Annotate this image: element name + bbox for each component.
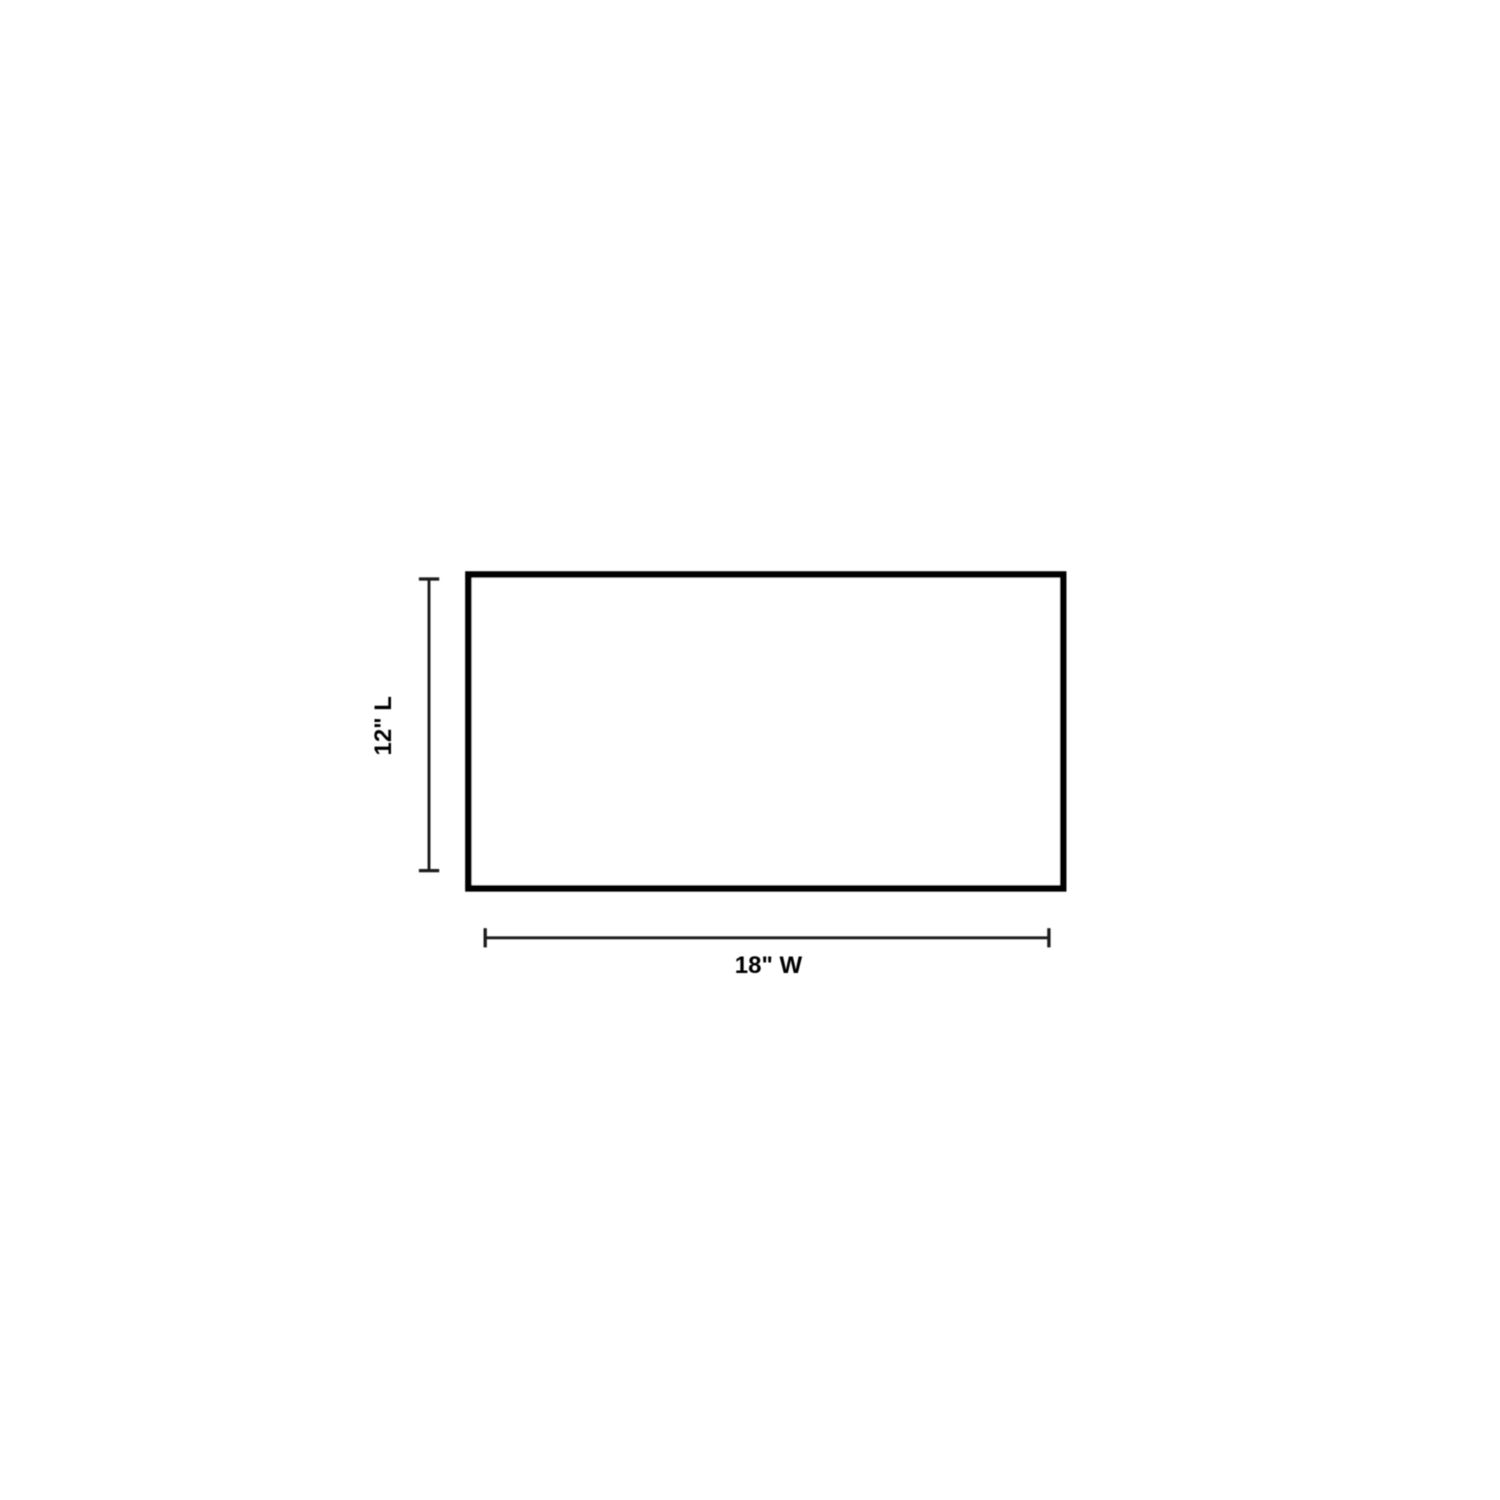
svg-text:18" W: 18" W: [735, 952, 803, 979]
svg-text:12" L: 12" L: [370, 696, 397, 755]
